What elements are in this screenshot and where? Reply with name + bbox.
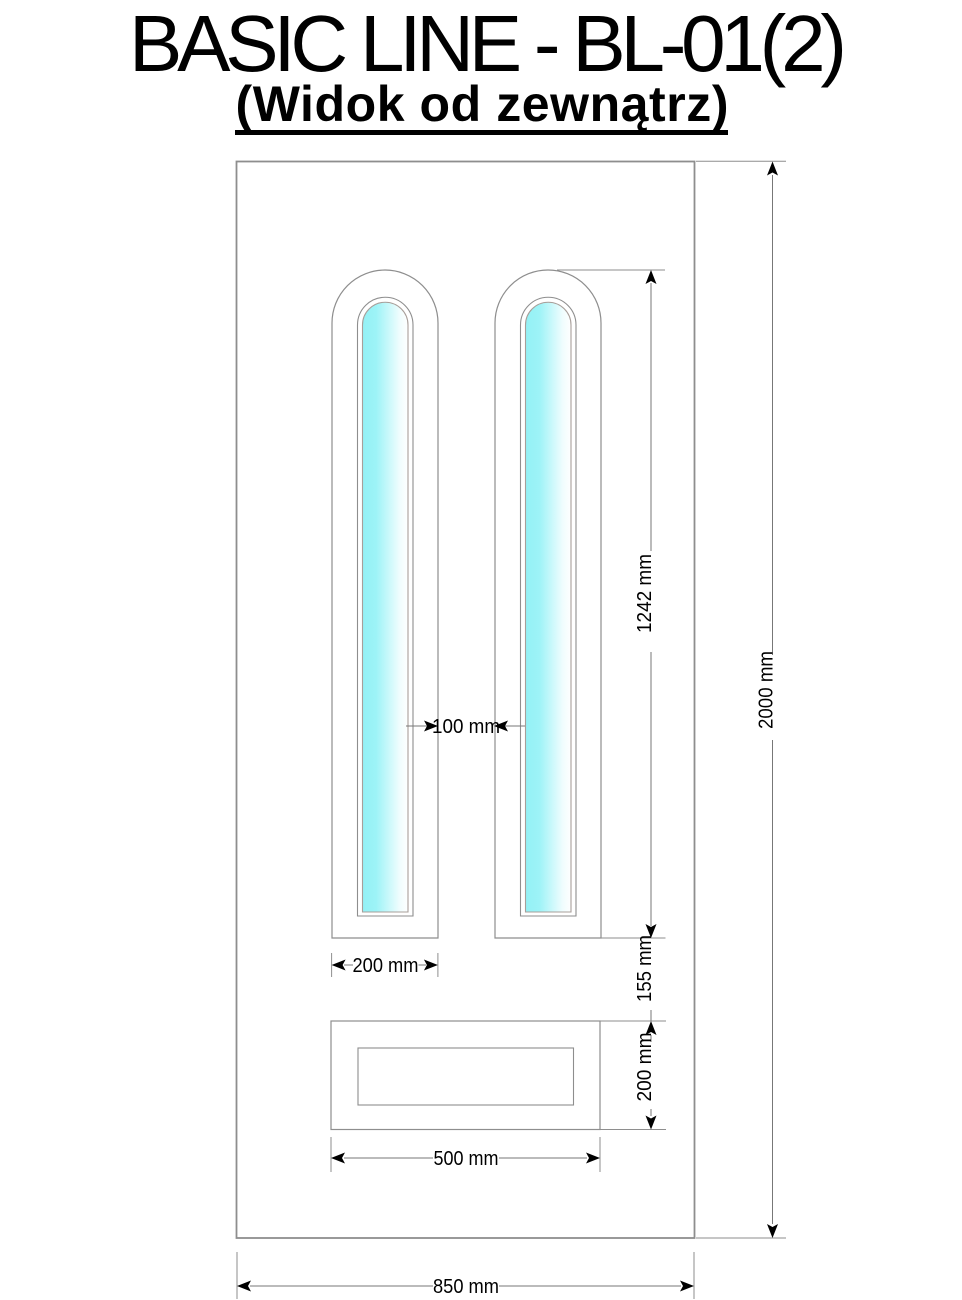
svg-text:(Widok od zewnątrz): (Widok od zewnątrz) (236, 76, 729, 132)
svg-text:BASIC LINE - BL-01(2): BASIC LINE - BL-01(2) (129, 0, 847, 88)
svg-text:500 mm: 500 mm (434, 1148, 499, 1170)
svg-text:200 mm: 200 mm (634, 1033, 656, 1102)
svg-text:2000 mm: 2000 mm (756, 651, 778, 729)
svg-text:200 mm: 200 mm (353, 955, 419, 977)
svg-text:155 mm: 155 mm (634, 935, 656, 1002)
svg-text:850 mm: 850 mm (433, 1276, 499, 1298)
svg-text:1242 mm: 1242 mm (634, 554, 656, 633)
svg-text:100 mm: 100 mm (432, 716, 500, 738)
